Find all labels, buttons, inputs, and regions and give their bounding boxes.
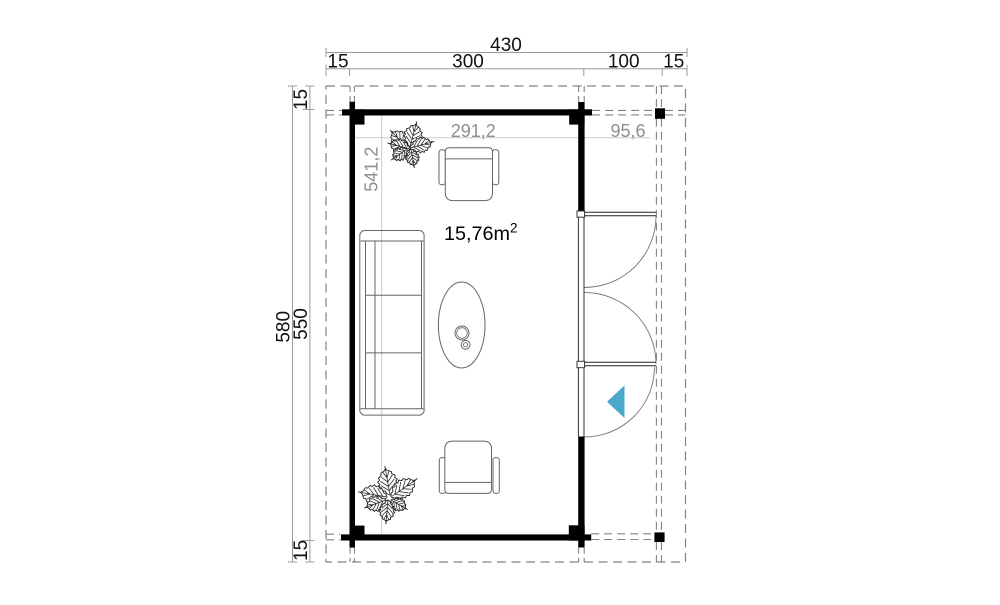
svg-text:15,76m2: 15,76m2 (444, 221, 518, 246)
svg-text:100: 100 (608, 52, 640, 73)
svg-text:291,2: 291,2 (451, 121, 496, 141)
svg-text:95,6: 95,6 (610, 121, 645, 141)
svg-text:15: 15 (291, 89, 312, 110)
svg-text:15: 15 (291, 540, 312, 561)
svg-text:430: 430 (490, 35, 522, 56)
svg-text:15: 15 (327, 52, 348, 73)
svg-text:15: 15 (663, 52, 684, 73)
svg-text:300: 300 (452, 52, 484, 73)
svg-text:550: 550 (291, 308, 312, 340)
svg-text:541,2: 541,2 (362, 147, 382, 192)
